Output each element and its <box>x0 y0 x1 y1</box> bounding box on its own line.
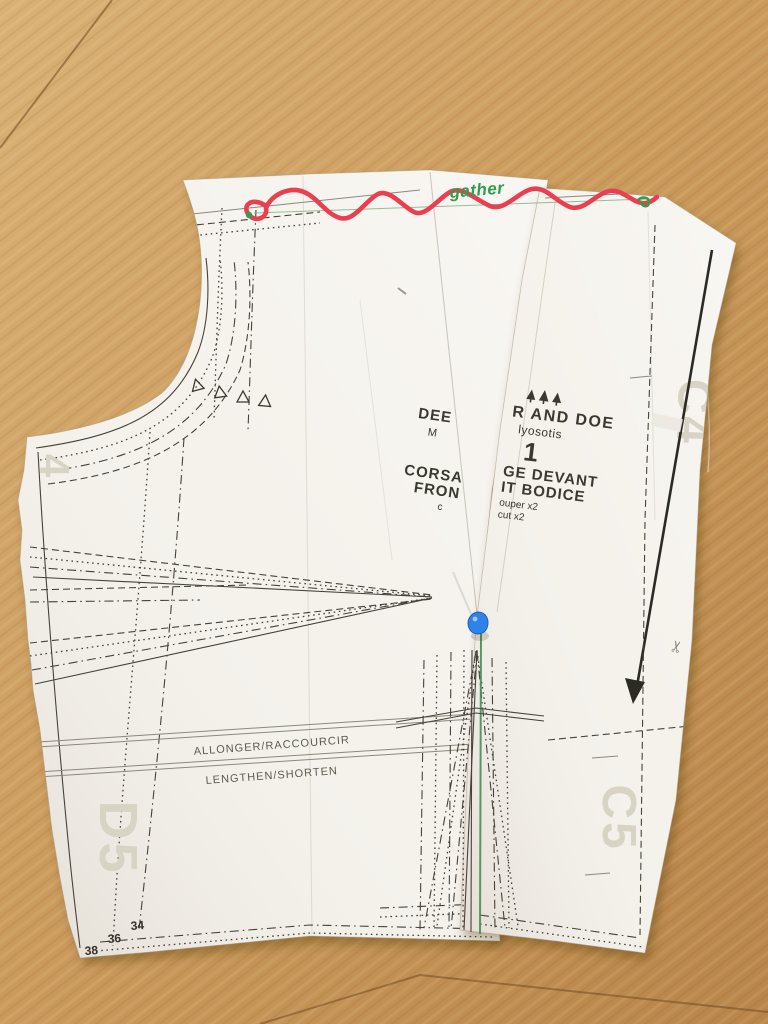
size-34: 34 <box>130 918 145 933</box>
pin-head-highlight <box>473 617 478 622</box>
green-start-dot <box>246 212 252 218</box>
pin-head <box>468 612 488 634</box>
panel-label-4: 4 <box>31 454 78 480</box>
photo-sewing-pattern-on-floor: ALLONGER/RACCOURCIR LENGTHEN/SHORTEN 38 … <box>0 0 768 1024</box>
size-38: 38 <box>84 943 99 958</box>
green-traced-dart-line <box>480 632 481 934</box>
size-36: 36 <box>107 931 122 946</box>
panel-label-c5: C5 <box>592 784 645 851</box>
title-partial-line2: M <box>427 426 438 439</box>
panel-label-d5: D5 <box>88 800 148 875</box>
pattern-photo-canvas: ALLONGER/RACCOURCIR LENGTHEN/SHORTEN 38 … <box>0 0 768 1024</box>
